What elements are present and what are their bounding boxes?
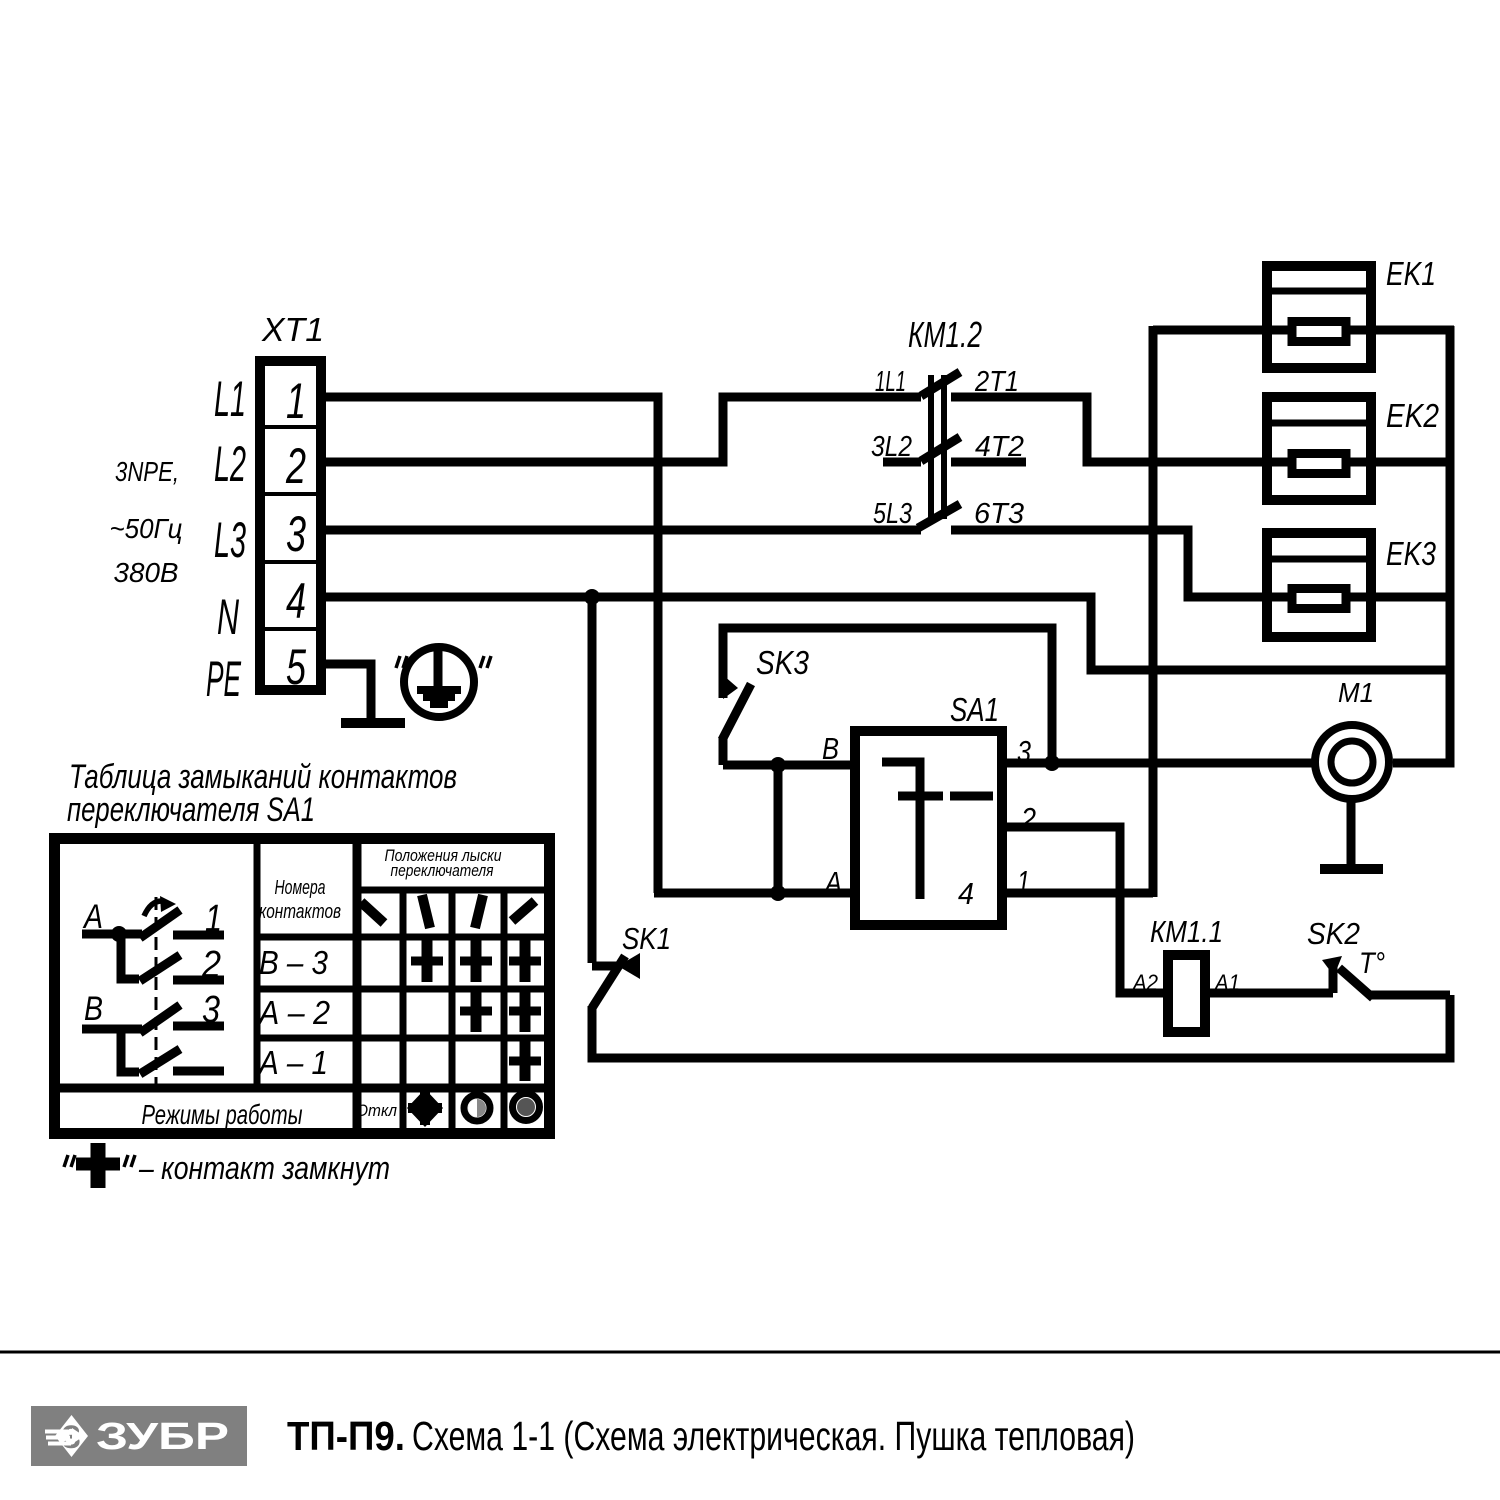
svg-text:380В: 380В <box>114 557 179 588</box>
svg-text:~50Гц: ~50Гц <box>110 513 183 544</box>
svg-text:1: 1 <box>286 373 306 429</box>
svg-text:ТП-П9.: ТП-П9. <box>287 1413 405 1459</box>
svg-text:КМ1.2: КМ1.2 <box>908 314 982 355</box>
svg-text:SK2: SK2 <box>1307 916 1360 951</box>
svg-text:2: 2 <box>285 438 306 494</box>
svg-text:L3: L3 <box>214 512 246 568</box>
svg-text:Схема 1-1 (Схема электрическая: Схема 1-1 (Схема электрическая. Пушка те… <box>412 1413 1135 1459</box>
svg-text:A2: A2 <box>1131 970 1158 995</box>
svg-text:Откл: Откл <box>356 1101 397 1120</box>
svg-text:Номера: Номера <box>275 877 326 899</box>
svg-text:B: B <box>84 990 103 1028</box>
svg-text:XT1: XT1 <box>261 311 324 348</box>
svg-text:Т°: Т° <box>1359 947 1385 980</box>
svg-text:3L2: 3L2 <box>871 431 912 463</box>
svg-text:1: 1 <box>205 898 222 940</box>
svg-text:A1: A1 <box>1213 970 1240 995</box>
svg-text:КМ1.1: КМ1.1 <box>1150 914 1223 949</box>
svg-text:переключателя SA1: переключателя SA1 <box>67 791 315 829</box>
svg-text:N: N <box>217 589 240 645</box>
svg-text:SK1: SK1 <box>622 921 671 956</box>
svg-text:А – 2: А – 2 <box>257 994 330 1031</box>
svg-text:4T2: 4T2 <box>975 431 1024 463</box>
svg-text:В – 3: В – 3 <box>259 944 329 981</box>
svg-text:3: 3 <box>286 506 306 562</box>
svg-text:2T1: 2T1 <box>974 366 1019 398</box>
svg-text:6T3: 6T3 <box>974 498 1024 530</box>
svg-text:А – 1: А – 1 <box>257 1044 328 1081</box>
svg-text:– контакт замкнут: – контакт замкнут <box>138 1150 390 1186</box>
svg-text:L1: L1 <box>214 371 246 427</box>
svg-text:контактов: контактов <box>259 901 341 923</box>
svg-text:5: 5 <box>286 639 306 695</box>
svg-text:1L1: 1L1 <box>875 366 906 398</box>
svg-text:L2: L2 <box>214 436 246 492</box>
svg-text:М1: М1 <box>1338 677 1374 708</box>
svg-text:3: 3 <box>202 989 220 1031</box>
svg-text:4: 4 <box>286 573 306 629</box>
svg-text:2: 2 <box>201 944 221 986</box>
svg-text:5L3: 5L3 <box>873 498 912 530</box>
svg-text:PE: PE <box>206 651 241 707</box>
svg-text:EK3: EK3 <box>1386 535 1437 572</box>
svg-text:SA1: SA1 <box>950 691 999 728</box>
svg-text:A: A <box>823 865 842 900</box>
svg-text:B: B <box>822 731 839 766</box>
svg-text:EK1: EK1 <box>1386 255 1436 292</box>
svg-text:4: 4 <box>958 876 974 911</box>
svg-text:3: 3 <box>1017 734 1031 769</box>
svg-text:Режимы работы: Режимы работы <box>142 1099 303 1130</box>
svg-text:SK3: SK3 <box>756 644 810 681</box>
svg-text:3NPE,: 3NPE, <box>115 456 179 487</box>
svg-text:EK2: EK2 <box>1386 397 1439 434</box>
svg-text:переключателя: переключателя <box>391 861 494 880</box>
svg-text:ЗУБР: ЗУБР <box>96 1416 229 1458</box>
